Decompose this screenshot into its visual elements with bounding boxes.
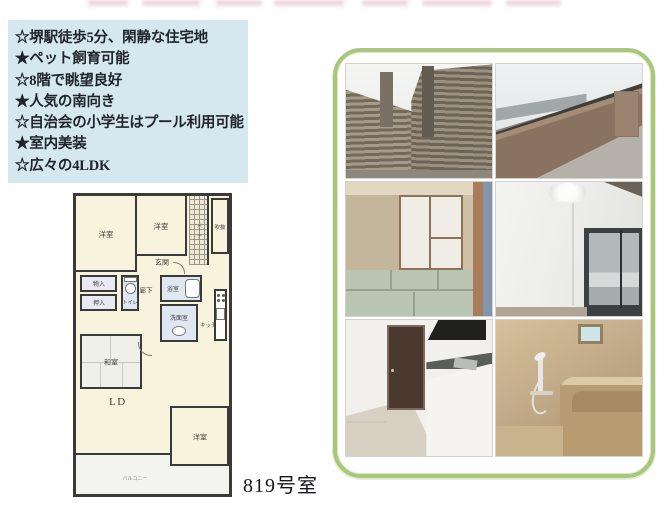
kitchen-cabinets bbox=[426, 364, 492, 456]
room-label-washroom: 洗面室 bbox=[170, 313, 188, 322]
cropped-title-fragment bbox=[216, 0, 262, 6]
feature-box: ☆堺駅徒歩5分、閑静な住宅地 ★ペット飼育可能 ☆8階で眺望良好 ★人気の南向き… bbox=[8, 20, 248, 183]
closet-divider bbox=[429, 195, 431, 270]
feature-line: ★室内美装 bbox=[15, 134, 244, 155]
photo-grid bbox=[346, 64, 642, 456]
flyer-page: ☆堺駅徒歩5分、閑静な住宅地 ★ペット飼育可能 ☆8階で眺望良好 ★人気の南向き… bbox=[0, 0, 669, 515]
closet-shelf bbox=[431, 237, 463, 239]
room-label-futon-closet: 押入 bbox=[93, 298, 105, 307]
room-label-toilet: トイレ bbox=[123, 298, 138, 306]
room-label-living-dining: LD bbox=[109, 396, 127, 408]
building-tower bbox=[422, 66, 434, 137]
feature-line: ☆自治会の小学生はプール利用可能 bbox=[15, 113, 244, 134]
room-label-entrance: 玄関 bbox=[155, 256, 169, 267]
room-storage: 物入 bbox=[80, 275, 117, 292]
ceiling-beam bbox=[604, 182, 642, 197]
room-void: 吹抜 bbox=[211, 198, 229, 254]
room-label-western2: 洋室 bbox=[154, 219, 169, 230]
floor bbox=[496, 307, 587, 316]
cropped-title-fragment bbox=[362, 0, 408, 6]
photo-japanese-room bbox=[346, 182, 492, 316]
tatami-seam bbox=[100, 363, 101, 387]
bathtub-interior bbox=[572, 391, 642, 413]
stove-icon bbox=[217, 294, 225, 302]
faucet-mixer bbox=[530, 391, 553, 396]
room-western2: 洋室 bbox=[137, 196, 187, 256]
bathroom-window bbox=[578, 324, 603, 344]
window-mullion bbox=[620, 230, 622, 308]
ceiling bbox=[346, 182, 492, 195]
room-label-japanese: 和室 bbox=[104, 356, 118, 367]
room-futon-closet: 押入 bbox=[80, 294, 117, 311]
cropped-title-fragment bbox=[422, 0, 492, 6]
shower-head bbox=[533, 350, 547, 362]
cropped-title-fragment bbox=[274, 0, 344, 6]
kitchen-sink-icon bbox=[216, 308, 225, 320]
tatami-seam bbox=[122, 363, 123, 387]
toilet-tank-icon bbox=[124, 277, 137, 282]
wall-corner bbox=[572, 203, 574, 305]
feature-line: ☆堺駅徒歩5分、閑静な住宅地 bbox=[15, 28, 244, 49]
room-label-storage: 物入 bbox=[93, 279, 105, 288]
photo-bathroom bbox=[496, 320, 642, 456]
feature-line: ★ペット飼育可能 bbox=[15, 49, 244, 70]
range-hood bbox=[428, 320, 486, 340]
room-japanese: 和室 bbox=[80, 334, 142, 389]
room-label-void: 吹抜 bbox=[215, 222, 226, 230]
tatami-seam bbox=[413, 292, 415, 316]
toilet-icon bbox=[125, 283, 136, 294]
cropped-title-fragment bbox=[142, 0, 200, 6]
feature-line: ★人気の南向き bbox=[15, 92, 244, 113]
feature-line: ☆8階で眺望良好 bbox=[15, 71, 244, 92]
room-western3: 洋室 bbox=[170, 406, 229, 466]
room-label-bath: 浴室 bbox=[167, 284, 179, 293]
cropped-title-fragment bbox=[88, 0, 128, 6]
kitchen-door bbox=[387, 325, 425, 409]
floor-plan: 洋室 洋室 ポーチ 吹抜 玄関 物入 押入 トイレ 廊下 浴室 bbox=[73, 193, 232, 497]
sliding-door-edge bbox=[483, 182, 492, 316]
photo-frame bbox=[333, 48, 655, 478]
room-label-porch: ポーチ bbox=[194, 223, 202, 238]
building-ground bbox=[346, 170, 492, 178]
room-western1: 洋室 bbox=[76, 196, 137, 272]
room-porch: ポーチ bbox=[189, 196, 209, 265]
balcony-side-panel bbox=[614, 91, 639, 136]
wood-pillar bbox=[473, 182, 483, 316]
room-toilet: トイレ bbox=[121, 275, 139, 311]
room-bath: 浴室 bbox=[160, 275, 202, 302]
baseboard bbox=[346, 421, 387, 423]
photo-western-room bbox=[496, 182, 642, 316]
sink-icon bbox=[172, 326, 186, 336]
shower-bar bbox=[538, 358, 542, 393]
bathtub-icon bbox=[185, 279, 200, 298]
ceiling-light bbox=[544, 183, 591, 202]
room-label-western1: 洋室 bbox=[98, 227, 113, 238]
tatami-seam bbox=[346, 289, 483, 291]
room-number-label: 819号室 bbox=[243, 469, 318, 498]
room-label-hallway: 廊下 bbox=[140, 285, 153, 295]
bathroom-floor bbox=[496, 426, 563, 456]
tatami-seam bbox=[437, 270, 439, 289]
kitchen-counter bbox=[214, 289, 227, 341]
feature-line: ☆広々の4LDK bbox=[15, 156, 244, 177]
cropped-title-fragment bbox=[506, 0, 561, 6]
tatami-seam bbox=[390, 270, 392, 289]
wall bbox=[346, 195, 399, 270]
photo-kitchen bbox=[346, 320, 492, 456]
room-label-balcony: バルコニー bbox=[122, 474, 147, 482]
building-tower bbox=[380, 72, 393, 127]
window-glass bbox=[589, 233, 639, 305]
room-washroom: 洗面室 bbox=[160, 304, 198, 342]
door-arc-entrance bbox=[173, 262, 185, 274]
photo-balcony-view bbox=[496, 64, 642, 178]
photo-building-exterior bbox=[346, 64, 492, 178]
room-label-western3: 洋室 bbox=[193, 431, 207, 442]
